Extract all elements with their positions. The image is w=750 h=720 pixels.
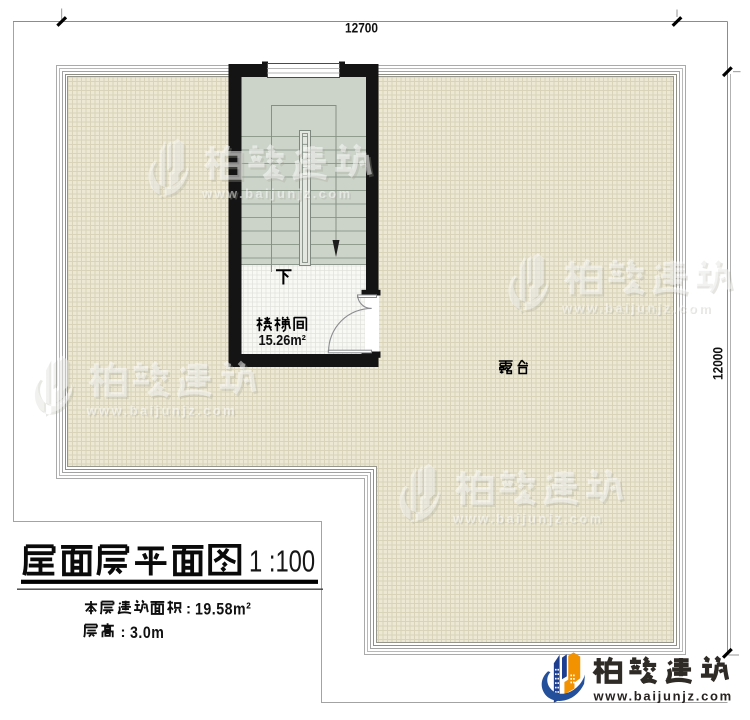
svg-text::: : (186, 601, 191, 618)
svg-text:12700: 12700 (345, 20, 378, 36)
svg-text:12000: 12000 (710, 347, 726, 380)
svg-text:1 :100: 1 :100 (249, 544, 315, 579)
svg-text:www.baijunjz.com: www.baijunjz.com (593, 689, 733, 704)
svg-text:3.0m: 3.0m (130, 624, 164, 642)
svg-text:19.58m²: 19.58m² (195, 601, 251, 619)
svg-text:15.26m²: 15.26m² (259, 332, 307, 348)
svg-text::: : (121, 624, 126, 641)
